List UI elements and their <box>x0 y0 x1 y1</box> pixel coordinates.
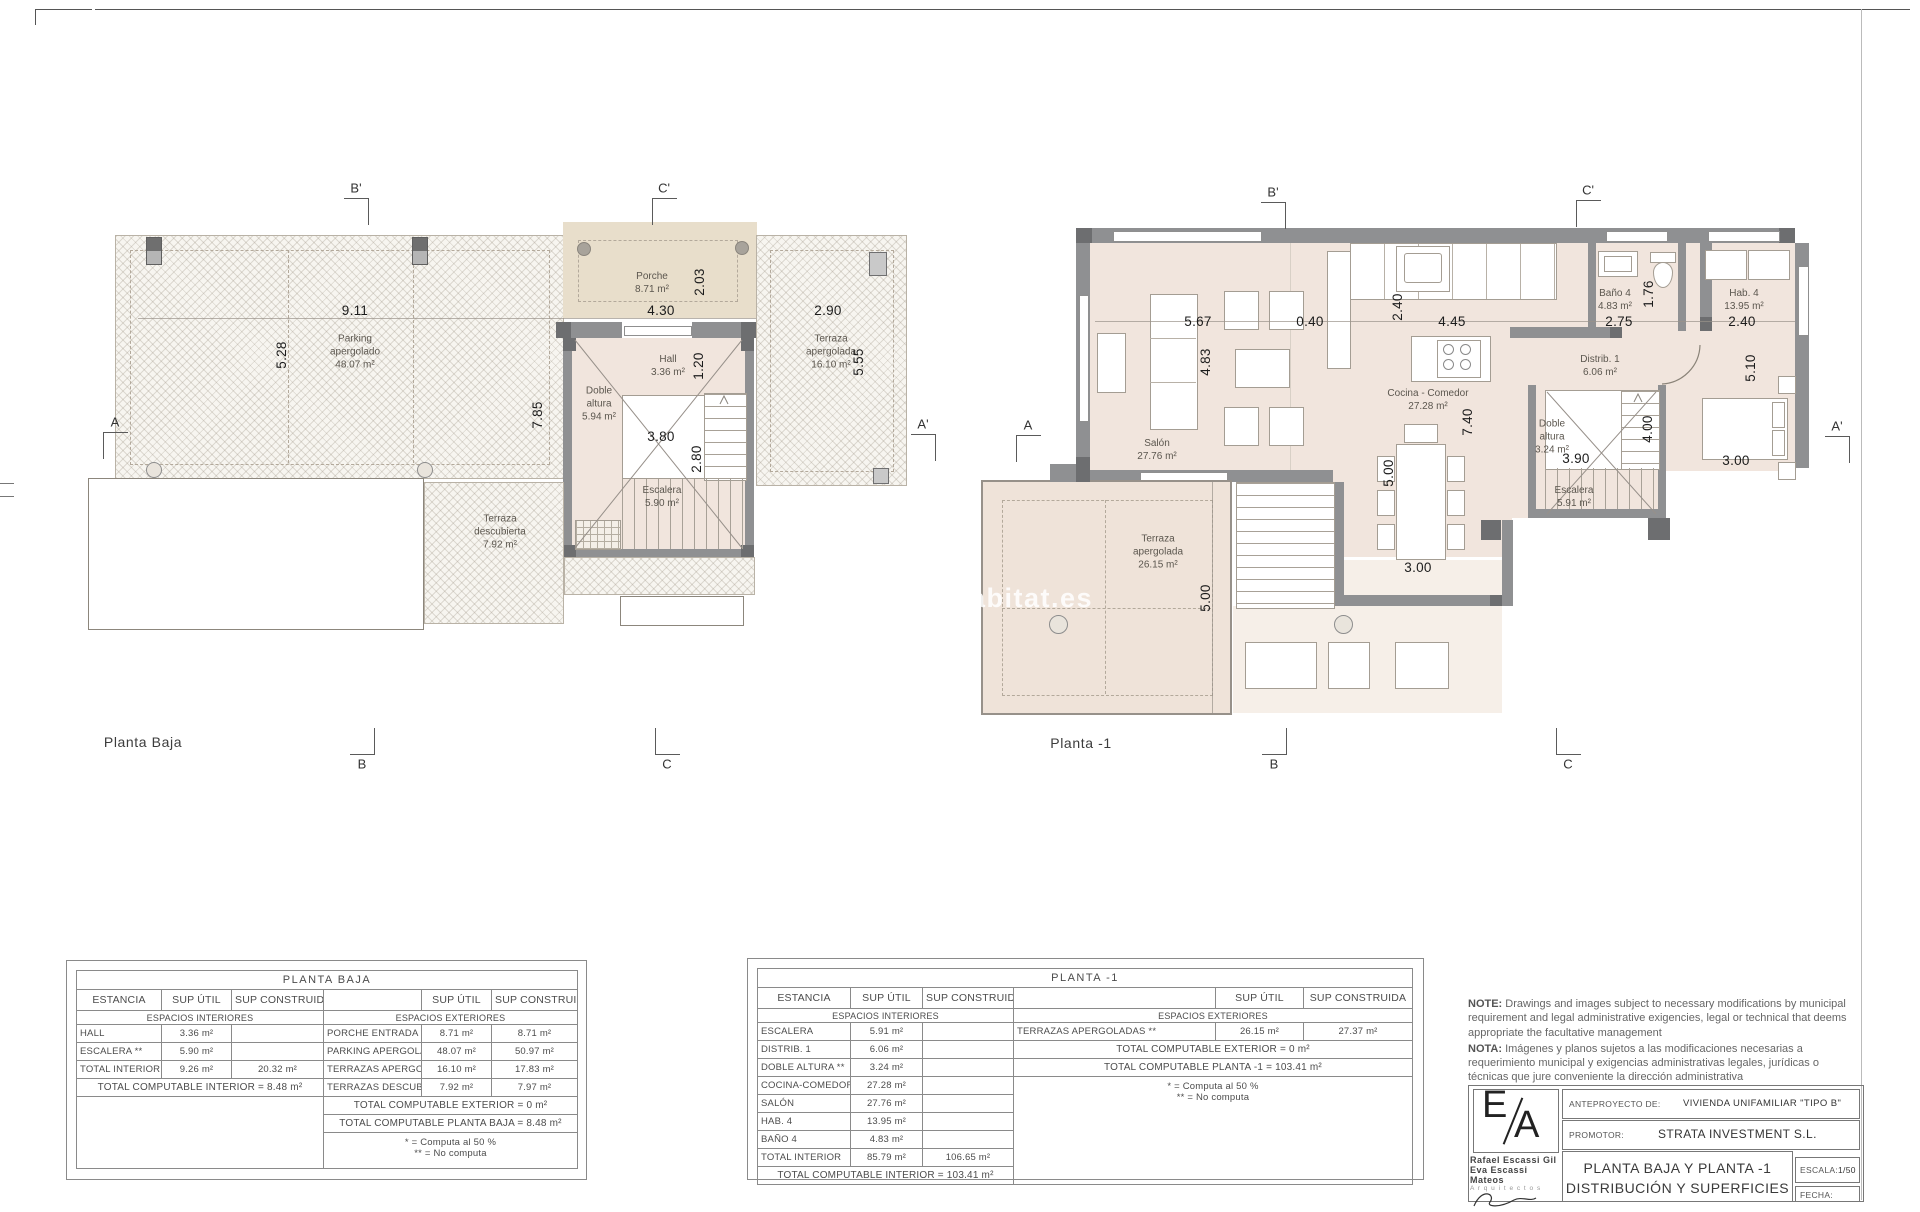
table-cell: ESTANCIA <box>77 990 162 1011</box>
sheet-top-border <box>95 9 1910 10</box>
wall-corner <box>741 338 754 351</box>
sofa-cushion-line <box>1150 382 1196 383</box>
porch-column <box>577 242 591 256</box>
room-label: Porche 8.71 m² <box>635 270 669 296</box>
wall-segment <box>1528 509 1666 518</box>
dimension-label: 3.00 <box>1722 452 1749 470</box>
table-cell: SUP CONSTRUIDA <box>492 990 578 1011</box>
room-label: Baño 4 4.83 m² <box>1598 287 1632 313</box>
wall-segment <box>1344 595 1502 606</box>
table-cell: 20.32 m² <box>232 1061 324 1079</box>
dimension-label: 3.00 <box>1404 559 1431 577</box>
table-cell: 7.97 m² <box>492 1079 578 1097</box>
escala-label: ESCALA: <box>1800 1165 1838 1175</box>
table-cell <box>923 1059 1014 1077</box>
dining-chair <box>1447 490 1465 516</box>
legal-notes: NOTE: Drawings and images subject to nec… <box>1468 997 1860 1087</box>
note-es: NOTA: Imágenes y planos sujetos a las mo… <box>1468 1042 1860 1085</box>
architects-names: Rafael Escassi Gil Eva Escassi Mateos A … <box>1470 1155 1560 1212</box>
section-mark-elbow <box>1556 728 1581 755</box>
dimension-label: 5.00 <box>1380 459 1398 486</box>
dining-chair <box>1404 424 1438 443</box>
section-mark-label: A <box>1024 418 1033 433</box>
section-mark-label: C' <box>658 181 670 196</box>
room-label: Cocina - Comedor 27.28 m² <box>1387 387 1468 413</box>
logo-cell: E A <box>1473 1089 1559 1153</box>
table-cell: TOTAL COMPUTABLE INTERIOR = 8.48 m² <box>77 1079 324 1097</box>
table-cell: ESPACIOS INTERIORES <box>77 1011 324 1025</box>
table-cell: 5.90 m² <box>162 1043 232 1061</box>
table-cell: ESCALERA <box>758 1023 851 1041</box>
table-cell: 48.07 m² <box>422 1043 492 1061</box>
section-mark-elbow <box>103 432 128 459</box>
wall-corner <box>1076 228 1092 243</box>
bathroom-sink-basin <box>1604 256 1632 272</box>
note-en-label: NOTE: <box>1468 998 1502 1010</box>
table-cell: TOTAL COMPUTABLE EXTERIOR = 0 m² <box>1014 1041 1413 1059</box>
dimension-label: 7.40 <box>1459 408 1477 435</box>
dimension-label: 5.10 <box>1742 354 1760 381</box>
section-mark-label: B' <box>350 181 361 196</box>
sofa-cushion-line <box>1150 338 1196 339</box>
dimension-label: 3.90 <box>1562 450 1589 468</box>
architect-signature <box>1470 1193 1540 1207</box>
area-table-planta-minus-1: PLANTA -1ESTANCIASUP ÚTILSUP CONSTRUIDAS… <box>757 968 1413 1185</box>
closet <box>1705 250 1747 280</box>
pergola-column <box>412 237 428 265</box>
exterior-step <box>620 596 744 626</box>
dimension-label: 1.20 <box>690 352 708 379</box>
armchair <box>1224 407 1259 446</box>
dining-chair <box>1447 456 1465 482</box>
table-cell: 13.95 m² <box>851 1113 923 1131</box>
anteproyecto-label: ANTEPROYECTO DE: <box>1569 1099 1661 1109</box>
sheet-corner-mark <box>35 9 92 25</box>
dimension-label: 4.00 <box>1639 415 1657 442</box>
nightstand <box>1778 376 1796 394</box>
dimension-label: 5.67 <box>1184 313 1211 331</box>
stair-treads <box>704 393 747 481</box>
table-cell: 50.97 m² <box>492 1043 578 1061</box>
table-cell: ESTANCIA <box>758 988 851 1009</box>
section-mark-label: A <box>111 415 120 430</box>
dining-table <box>1396 444 1446 560</box>
architects-word: A r q u i t e c t o s <box>1470 1185 1560 1192</box>
sheet-left-tick <box>0 496 14 497</box>
pillow <box>1772 402 1785 428</box>
hob-burner <box>1460 344 1471 355</box>
wall-segment <box>1502 520 1513 606</box>
terrace-column <box>873 468 889 484</box>
table-frame-planta-baja: PLANTA BAJAESTANCIASUP ÚTILSUP CONSTRUID… <box>66 960 587 1180</box>
area-table-planta-baja: PLANTA BAJAESTANCIASUP ÚTILSUP CONSTRUID… <box>76 970 578 1169</box>
wall-corner <box>1076 464 1090 482</box>
table-cell: DOBLE ALTURA ** <box>758 1059 851 1077</box>
tall-cabinet <box>1327 251 1351 369</box>
planter <box>1328 642 1370 689</box>
table-cell: TERRAZAS APERGOLADAS ** <box>1014 1023 1216 1041</box>
room-label: Escalera 5.91 m² <box>1555 484 1594 510</box>
pergola-post <box>1334 615 1353 634</box>
dimension-label: 0.40 <box>1296 313 1323 331</box>
table-cell: TOTAL INTERIOR <box>77 1061 162 1079</box>
hob-burner <box>1460 359 1471 370</box>
promotor-value: STRATA INVESTMENT S.L. <box>1658 1127 1817 1141</box>
dimension-label: 9.11 <box>342 302 368 320</box>
section-mark-label: B <box>1270 757 1279 772</box>
table-cell <box>923 1077 1014 1095</box>
table-cell: 17.83 m² <box>492 1061 578 1079</box>
fecha-label: FECHA: <box>1800 1190 1833 1200</box>
section-mark-elbow <box>350 728 375 755</box>
dining-chair <box>1377 490 1395 516</box>
sheet-left-tick <box>0 483 14 484</box>
terrace-column <box>869 252 887 276</box>
section-mark-elbow <box>652 198 677 225</box>
room-label: Terraza descubierta 7.92 m² <box>474 513 526 552</box>
room-label: Doble altura 5.94 m² <box>582 385 616 424</box>
dimension-label: 2.03 <box>691 268 709 295</box>
table-cell: 8.71 m² <box>422 1025 492 1043</box>
stair-column <box>1648 518 1670 540</box>
table-cell <box>324 990 422 1011</box>
wall-corner <box>1490 595 1502 606</box>
wall-segment <box>1588 243 1596 329</box>
table-cell: PORCHE ENTRADA ** <box>324 1025 422 1043</box>
wall-corner <box>741 322 756 338</box>
window <box>1798 266 1809 336</box>
table-cell: SUP ÚTIL <box>851 988 923 1009</box>
table-cell: PLANTA BAJA <box>77 971 578 990</box>
table-cell: * = Computa al 50 % ** = No computa <box>1014 1077 1413 1185</box>
window <box>1708 231 1780 242</box>
dimension-label: 4.83 <box>1197 348 1215 375</box>
table-cell: HAB. 4 <box>758 1113 851 1131</box>
table-cell: ESPACIOS EXTERIORES <box>1014 1009 1413 1023</box>
table-cell: HALL <box>77 1025 162 1043</box>
pergola-post <box>417 462 433 478</box>
table-cell: 5.91 m² <box>851 1023 923 1041</box>
table-cell: 106.65 m² <box>923 1149 1014 1167</box>
table-cell: SUP CONSTRUIDA <box>232 990 324 1011</box>
architect-name: Eva Escassi Mateos <box>1470 1165 1560 1185</box>
section-mark-label: C <box>1563 757 1572 772</box>
wall-corner <box>1700 317 1712 331</box>
pergola-post <box>146 462 162 478</box>
room-label: Escalera 5.90 m² <box>643 484 682 510</box>
escala-value: 1/50 <box>1838 1165 1856 1175</box>
table-cell: SUP CONSTRUIDA <box>923 988 1014 1009</box>
porch-column <box>735 241 749 255</box>
plan-title-planta-baja: Planta Baja <box>104 733 182 751</box>
note-es-label: NOTA: <box>1468 1043 1502 1055</box>
table-cell: ESCALERA ** <box>77 1043 162 1061</box>
room-label: Terraza apergolada 26.15 m² <box>1133 533 1183 572</box>
table-cell <box>1014 988 1216 1009</box>
wall-corner <box>563 338 576 351</box>
dimension-label: 2.90 <box>814 302 841 320</box>
table-cell: ESPACIOS INTERIORES <box>758 1009 1014 1023</box>
table-cell: 8.71 m² <box>492 1025 578 1043</box>
table-cell: 9.26 m² <box>162 1061 232 1079</box>
stair-landing-hatch <box>575 520 621 550</box>
table-cell: PARKING APERGOLADO ** <box>324 1043 422 1061</box>
table-cell: 27.37 m² <box>1304 1023 1413 1041</box>
window <box>1079 295 1089 422</box>
note-en: NOTE: Drawings and images subject to nec… <box>1468 997 1860 1040</box>
section-mark-elbow <box>1576 200 1601 227</box>
armchair <box>1224 291 1259 330</box>
dimension-label: 2.40 <box>1728 313 1755 331</box>
section-mark-elbow <box>1261 202 1286 229</box>
plan-title-planta-minus-1: Planta -1 <box>1050 734 1111 752</box>
coffee-table <box>1235 349 1290 388</box>
wall-segment <box>1236 470 1333 482</box>
anteproyecto-row: ANTEPROYECTO DE: VIVIENDA UNIFAMILIAR "T… <box>1562 1089 1860 1119</box>
table-cell: 27.28 m² <box>851 1077 923 1095</box>
dimension-label: 2.40 <box>1389 293 1407 320</box>
dimension-label: 4.45 <box>1438 313 1465 331</box>
dimension-label: 4.30 <box>647 302 674 320</box>
sheet-title-line1: PLANTA BAJA Y PLANTA -1 <box>1563 1160 1792 1176</box>
dining-chair <box>1377 524 1395 550</box>
wall-segment <box>563 549 754 558</box>
table-cell: 85.79 m² <box>851 1149 923 1167</box>
table-cell: TOTAL COMPUTABLE PLANTA -1 = 103.41 m² <box>1014 1059 1413 1077</box>
nightstand <box>1778 462 1796 480</box>
table-cell: 3.24 m² <box>851 1059 923 1077</box>
escala-cell: ESCALA: 1/50 <box>1795 1157 1860 1183</box>
section-mark-label: C <box>662 757 671 772</box>
wall-corner <box>556 322 571 338</box>
sheet-title-cell: PLANTA BAJA Y PLANTA -1 DISTRIBUCIÓN Y S… <box>1562 1151 1793 1202</box>
section-mark-elbow <box>655 728 680 755</box>
table-cell: TOTAL COMPUTABLE PLANTA BAJA = 8.48 m² <box>324 1115 578 1133</box>
room-label: Salón 27.76 m² <box>1137 437 1176 463</box>
table-cell: 4.83 m² <box>851 1131 923 1149</box>
table-cell: BAÑO 4 <box>758 1131 851 1149</box>
dimension-label: 5.28 <box>273 341 291 368</box>
section-mark-label: B' <box>1267 185 1278 200</box>
section-mark-label: A' <box>917 417 928 432</box>
pool-outline <box>88 478 424 630</box>
table-cell <box>77 1097 324 1169</box>
section-mark-elbow <box>1262 728 1287 755</box>
table-cell <box>923 1041 1014 1059</box>
table-cell: TERRAZAS DESCUBIERTAS ** <box>324 1079 422 1097</box>
table-cell: SUP ÚTIL <box>1216 988 1304 1009</box>
table-cell <box>232 1043 324 1061</box>
sheet-title-line2: DISTRIBUCIÓN Y SUPERFICIES <box>1563 1180 1792 1196</box>
wall-segment <box>563 338 572 552</box>
parking-bay-divider <box>413 250 414 463</box>
pergola-post <box>1049 615 1068 634</box>
window <box>1606 231 1668 242</box>
table-frame-planta-minus-1: PLANTA -1ESTANCIASUP ÚTILSUP CONSTRUIDAS… <box>747 958 1424 1180</box>
note-en-text: Drawings and images subject to necessary… <box>1468 998 1847 1039</box>
section-mark-label: A' <box>1831 419 1842 434</box>
table-cell <box>923 1023 1014 1041</box>
note-es-text: Imágenes y planos sujetos a las modifica… <box>1468 1043 1819 1084</box>
dimension-label: 1.76 <box>1640 280 1658 307</box>
table-cell <box>923 1095 1014 1113</box>
logo-letter-e: E <box>1482 1084 1507 1127</box>
table-cell: SUP CONSTRUIDA <box>1304 988 1413 1009</box>
open-terrace-area <box>425 483 563 623</box>
table-cell: DISTRIB. 1 <box>758 1041 851 1059</box>
section-mark-label: C' <box>1582 183 1594 198</box>
dimension-label: 5.55 <box>850 348 868 375</box>
pergola-column <box>146 237 162 265</box>
planter <box>1395 642 1449 689</box>
room-label: Parking apergolado 48.07 m² <box>330 333 380 372</box>
terrace-dashed-line <box>1105 500 1106 694</box>
table-cell <box>232 1025 324 1043</box>
dining-chair <box>1447 524 1465 550</box>
table-cell: SUP ÚTIL <box>422 990 492 1011</box>
kitchen-counter <box>1350 243 1557 300</box>
promotor-label: PROMOTOR: <box>1569 1130 1624 1140</box>
dimension-label: 3.80 <box>647 428 674 446</box>
table-cell: * = Computa al 50 % ** = No computa <box>324 1133 578 1169</box>
wall-corner <box>1779 228 1795 243</box>
table-cell: TOTAL INTERIOR <box>758 1149 851 1167</box>
promotor-row: PROMOTOR: STRATA INVESTMENT S.L. <box>1562 1120 1860 1150</box>
table-cell: TERRAZAS APERGOLADAS ** <box>324 1061 422 1079</box>
anteproyecto-value: VIVIENDA UNIFAMILIAR "TIPO B" <box>1683 1098 1841 1109</box>
dimension-label: 2.75 <box>1605 313 1632 331</box>
architect-name: Rafael Escassi Gil <box>1470 1155 1560 1165</box>
terrace-door <box>1140 472 1228 482</box>
armchair <box>1269 407 1304 446</box>
exterior-stairs <box>1236 482 1335 609</box>
closet <box>1748 250 1790 280</box>
dimension-label: 2.80 <box>688 445 706 472</box>
terrace-strip <box>565 558 754 594</box>
table-cell: 3.36 m² <box>162 1025 232 1043</box>
section-mark-elbow <box>1016 435 1041 462</box>
room-label: Distrib. 1 6.06 m² <box>1580 353 1619 379</box>
room-label: Terraza apergolada 16.10 m² <box>806 333 856 372</box>
table-cell: TOTAL COMPUTABLE INTERIOR = 103.41 m² <box>758 1167 1014 1185</box>
table-cell: PLANTA -1 <box>758 969 1413 988</box>
section-mark-elbow <box>1825 436 1850 463</box>
entrance-door <box>624 326 692 336</box>
stair-treads <box>622 479 745 549</box>
table-cell: SALÓN <box>758 1095 851 1113</box>
pillow <box>1772 430 1785 456</box>
section-mark-elbow <box>344 198 369 225</box>
table-cell: SUP ÚTIL <box>162 990 232 1011</box>
table-cell: COCINA-COMEDOR <box>758 1077 851 1095</box>
wall-segment <box>1678 243 1686 331</box>
table-cell: TOTAL COMPUTABLE EXTERIOR = 0 m² <box>324 1097 578 1115</box>
hob-burner <box>1443 344 1454 355</box>
table-cell <box>923 1131 1014 1149</box>
table-cell: 16.10 m² <box>422 1061 492 1079</box>
sheet-right-border <box>1861 9 1862 1200</box>
planter <box>1245 642 1317 689</box>
table-cell: 27.76 m² <box>851 1095 923 1113</box>
logo-letter-a: A <box>1514 1104 1539 1147</box>
window <box>1113 231 1262 242</box>
dimension-label: 7.85 <box>529 401 547 428</box>
sink-basin <box>1404 253 1442 283</box>
room-label: Hab. 4 13.95 m² <box>1724 287 1763 313</box>
table-cell: 6.06 m² <box>851 1041 923 1059</box>
dimension-label: 5.00 <box>1197 584 1215 611</box>
section-mark-elbow <box>911 434 936 461</box>
section-mark-label: B <box>358 757 367 772</box>
watermark: habitat.es <box>952 583 1093 614</box>
table-cell <box>923 1113 1014 1131</box>
table-cell: 7.92 m² <box>422 1079 492 1097</box>
hob-burner <box>1443 359 1454 370</box>
table-cell: ESPACIOS EXTERIORES <box>324 1011 578 1025</box>
side-table <box>1097 333 1126 393</box>
stair-column <box>1481 520 1501 540</box>
table-cell: 26.15 m² <box>1216 1023 1304 1041</box>
room-label: Hall 3.36 m² <box>651 353 685 379</box>
